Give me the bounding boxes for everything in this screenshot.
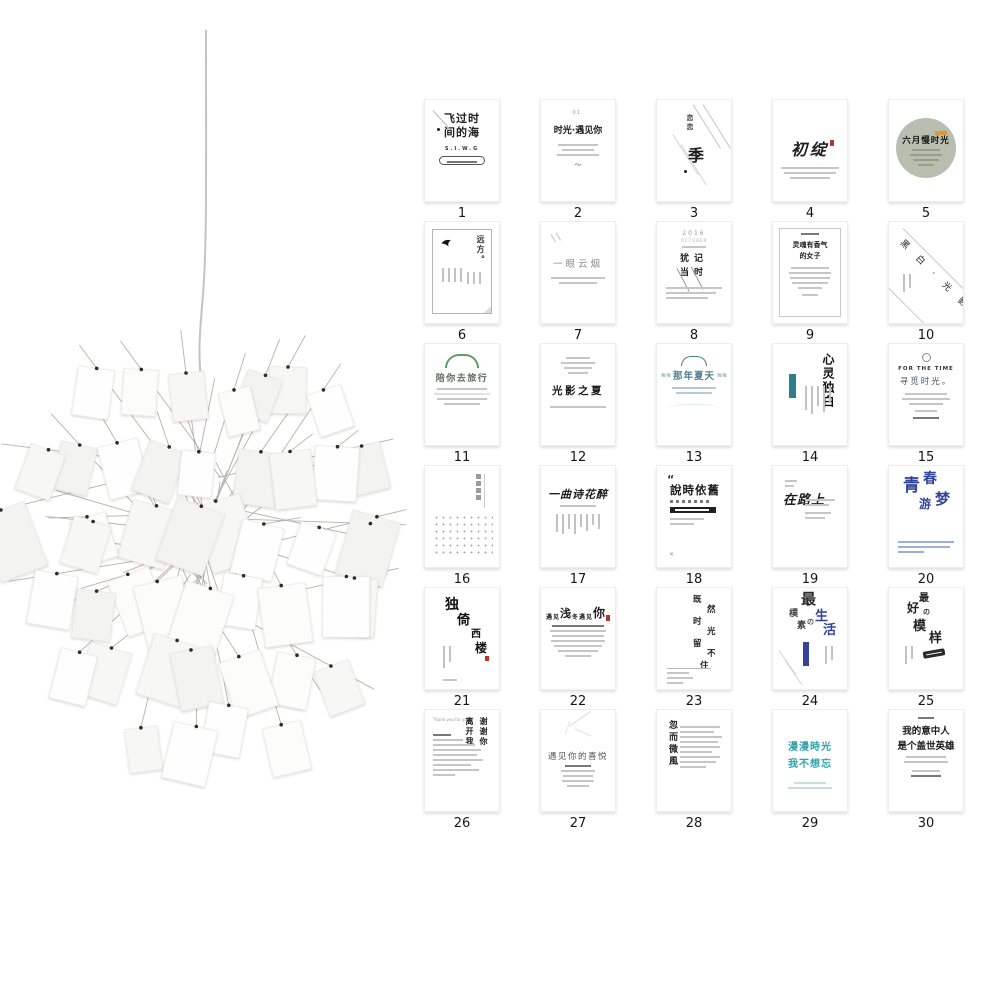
text-lines — [889, 756, 963, 758]
text-lines — [889, 393, 963, 405]
card-design-30: 我的意中人是个盖世英雄 — [888, 709, 964, 812]
card-title-small: 恋恋 — [686, 114, 693, 132]
vertical-text-lines — [541, 514, 615, 534]
text-lines — [889, 717, 963, 719]
text-lines — [785, 480, 847, 487]
wave-watermark — [667, 404, 721, 414]
card-number: 28 — [656, 816, 732, 831]
text-lines — [657, 246, 731, 248]
clip-dot — [195, 725, 199, 729]
clip-dot — [91, 520, 95, 524]
card-cell: 初绽4 — [772, 99, 848, 221]
bar-text-line — [675, 509, 709, 511]
text-line — [552, 625, 604, 627]
card-number: 16 — [424, 572, 500, 587]
title-char: 你 — [593, 604, 605, 621]
vertical-line — [598, 514, 600, 529]
card-design-6: 远方。 — [424, 221, 500, 324]
clip-dot — [200, 504, 204, 508]
card-title: 光影之夏 — [541, 383, 615, 398]
clip-dot — [175, 639, 179, 643]
clip-dot — [288, 450, 292, 454]
clip-dot — [189, 648, 193, 652]
card-title2: 是个盖世英雄 — [889, 738, 963, 752]
title-char: の — [923, 608, 930, 615]
text-lines — [889, 775, 963, 777]
card-number: 24 — [772, 694, 848, 709]
clip-dot — [322, 388, 326, 392]
text-line — [433, 754, 477, 756]
vertical-line — [443, 646, 445, 668]
text-line — [561, 362, 595, 364]
card-title: 漫漫時光 — [773, 738, 847, 753]
vertical-line — [568, 514, 570, 529]
text-line — [565, 765, 591, 767]
clip-dot — [214, 499, 218, 503]
text-line — [667, 682, 683, 684]
card-number: 9 — [772, 328, 848, 343]
ink-dot — [437, 128, 440, 131]
clip-dot — [85, 515, 89, 519]
clip-dot — [259, 450, 263, 454]
card-design-22: 遇见浅冬遇见你 — [540, 587, 616, 690]
title-char: 游 — [919, 498, 931, 510]
text-line — [802, 294, 818, 296]
card-number: 25 — [888, 694, 964, 709]
card-cell: 忽而微風28 — [656, 709, 732, 831]
clip-dot — [317, 526, 321, 530]
card-number: 14 — [772, 450, 848, 465]
card-cell: 独倚西楼21 — [424, 587, 500, 709]
text-line — [801, 233, 819, 235]
card-title: 忽而微風 — [667, 720, 676, 768]
clip-dot — [329, 664, 333, 668]
circle-icon — [922, 353, 931, 362]
card-title: 一曲诗花醉 — [541, 486, 615, 502]
clip-dot — [279, 723, 283, 727]
card-number: 17 — [540, 572, 616, 587]
text-lines — [898, 538, 958, 553]
card-number: 23 — [656, 694, 732, 709]
clip-dot — [242, 574, 246, 578]
design-grid: 飞过时间的海S.I.W.G101.时光·遇见你～2恋恋季3初绽4六月慢时光5远方… — [424, 99, 964, 831]
title-char: 住 — [700, 662, 709, 671]
card-title2: 我不想忘 — [773, 755, 847, 770]
vertical-line — [903, 274, 905, 292]
paper-sheet — [177, 450, 215, 498]
card-number: 15 — [888, 450, 964, 465]
title-char: 既 — [693, 596, 702, 605]
vertical-line — [805, 386, 807, 410]
text-line — [672, 387, 716, 389]
card-number: 20 — [888, 572, 964, 587]
card-design-2: 01.时光·遇见你～ — [540, 99, 616, 202]
clip-dot — [55, 572, 59, 576]
text-line — [680, 746, 720, 748]
text-line — [433, 764, 471, 766]
clip-dot — [78, 650, 82, 654]
text-lines — [541, 357, 615, 374]
card-number: 26 — [424, 816, 500, 831]
card-design-25: 最好の模样 — [888, 587, 964, 690]
paper-sheet — [161, 721, 217, 787]
paragraph — [680, 723, 724, 768]
card-pretitle: 01. — [541, 110, 615, 116]
card-title: 說時依舊 — [670, 482, 731, 498]
card-cell: 遇见你的喜悦27 — [540, 709, 616, 831]
clip-dot — [126, 573, 130, 577]
card-cell: 2016OCTOBER犹记当时8 — [656, 221, 732, 343]
teal-tag — [789, 374, 796, 398]
paper-sheet — [314, 660, 365, 717]
diagonal-line — [569, 711, 591, 727]
vertical-line — [479, 272, 481, 284]
title-char: 见 — [553, 612, 559, 621]
text-lines — [425, 388, 499, 390]
card-design-19: 在路上 — [772, 465, 848, 568]
clip-dot — [95, 367, 99, 371]
diagonal-line — [785, 660, 803, 685]
card-design-1: 飞过时间的海S.I.W.G — [424, 99, 500, 202]
vertical-line — [448, 268, 450, 282]
title-char: 楼 — [475, 642, 487, 654]
card-cell: 漫漫時光我不想忘29 — [772, 709, 848, 831]
text-line — [562, 780, 594, 782]
card-cell: FOR THE TIME寻觅时光。15 — [888, 343, 964, 465]
side-note — [805, 496, 839, 519]
card-cell: 最樸素の生活24 — [772, 587, 848, 709]
card-number: 27 — [540, 816, 616, 831]
card-cell: 一曲诗花醉17 — [540, 465, 616, 587]
folded-corner — [484, 306, 491, 313]
text-line — [557, 154, 599, 156]
product-image: 飞过时间的海S.I.W.G101.时光·遇见你～2恋恋季3初绽4六月慢时光5远方… — [0, 0, 990, 990]
title-char: 然 — [707, 606, 716, 615]
text-line — [433, 759, 483, 761]
character-grid — [433, 514, 493, 558]
paper-sheet — [72, 366, 115, 420]
card-cell: 在路上19 — [772, 465, 848, 587]
text-lines — [773, 167, 847, 179]
card-design-13: ≋≋那年夏天≋≋ — [656, 343, 732, 446]
ink-dot — [684, 170, 687, 173]
clip-dot — [279, 584, 283, 588]
title-char: 遇 — [579, 612, 585, 621]
text-line — [433, 734, 451, 736]
text-lines — [889, 410, 963, 412]
text-line — [680, 756, 720, 758]
text-line — [564, 367, 592, 369]
card-number: 7 — [540, 328, 616, 343]
text-line — [789, 272, 831, 274]
card-title: 远方。 — [476, 235, 484, 265]
title-char: 样 — [929, 632, 942, 645]
card-number: 22 — [540, 694, 616, 709]
text-line — [565, 655, 591, 657]
clip-dot — [139, 726, 143, 730]
clip-dot — [232, 388, 236, 392]
vertical-line — [905, 646, 907, 664]
card-number: 10 — [888, 328, 964, 343]
card-design-7: 一眼云烟 — [540, 221, 616, 324]
text-lines — [666, 287, 731, 299]
clip-dot — [197, 450, 201, 454]
clip-dot — [375, 515, 379, 519]
vertical-text-lines — [823, 646, 835, 664]
text-line — [680, 761, 716, 763]
text-line — [902, 398, 950, 400]
text-line — [666, 287, 722, 289]
vertical-text-lines — [901, 274, 913, 292]
title-char: 遇 — [546, 612, 552, 621]
card-cell: 心灵独白14 — [772, 343, 848, 465]
card-design-18: “說時依舊✕ — [656, 465, 732, 568]
paper-sheet — [258, 582, 313, 647]
text-line — [666, 292, 716, 294]
paper-sheet — [125, 726, 163, 774]
lamp-cord — [199, 30, 206, 392]
text-line — [558, 144, 598, 146]
card-pretitle: 2016 — [657, 230, 731, 237]
text-line — [560, 505, 596, 507]
text-line — [784, 172, 836, 174]
text-line — [791, 267, 829, 269]
title-char: 倚 — [457, 614, 470, 627]
clip-dot — [286, 365, 290, 369]
card-title: 我的意中人 — [889, 723, 963, 737]
vertical-line — [829, 386, 831, 402]
card-design-3: 恋恋季 — [656, 99, 732, 202]
card-number: 12 — [540, 450, 616, 465]
vertical-line — [460, 268, 462, 282]
card-design-12: 光影之夏 — [540, 343, 616, 446]
card-design-10: 黑 白 · 光 影 — [888, 221, 964, 324]
wave-glyph: ≋≋ — [717, 372, 727, 379]
vertical-line — [825, 646, 827, 664]
vertical-line — [562, 514, 564, 534]
text-lines — [541, 144, 615, 156]
vertical-line — [911, 646, 913, 659]
vertical-line — [811, 386, 813, 414]
title-char: 好 — [907, 602, 919, 614]
wave-mark: ～ — [541, 160, 615, 170]
text-line — [680, 766, 706, 768]
text-line — [670, 523, 694, 525]
paper-sheet — [26, 570, 78, 630]
text-line — [785, 485, 794, 487]
text-lines — [773, 233, 847, 235]
title-char: “ — [667, 474, 674, 485]
title-char: 见 — [586, 612, 592, 621]
text-line — [447, 161, 477, 163]
card-design-27: 遇见你的喜悦 — [540, 709, 616, 812]
text-lines — [805, 512, 839, 519]
card-design-16 — [424, 465, 500, 568]
text-line — [437, 388, 487, 390]
text-line — [443, 679, 457, 681]
card-cell: Thank you for your love离开我谢谢你26 — [424, 709, 500, 831]
title-char: 独 — [445, 598, 459, 612]
card-title: 陪你去旅行 — [425, 371, 499, 384]
text-lines — [805, 499, 839, 506]
text-line — [554, 645, 602, 647]
glyph-block — [476, 495, 481, 500]
green-arc — [445, 354, 479, 368]
text-line — [434, 393, 490, 395]
red-seal — [606, 615, 610, 621]
card-cell: “說時依舊✕18 — [656, 465, 732, 587]
card-number: 18 — [656, 572, 732, 587]
glyph-block — [476, 488, 481, 493]
title-char: 浅 — [560, 605, 571, 621]
card-number: 8 — [656, 328, 732, 343]
card-design-26: Thank you for your love离开我谢谢你 — [424, 709, 500, 812]
text-line — [670, 518, 704, 520]
orange-tag — [935, 131, 947, 135]
text-line — [568, 372, 588, 374]
x-mark: ✕ — [669, 552, 674, 558]
clip-dot — [209, 587, 213, 591]
text-lines — [889, 761, 963, 763]
card-number: 29 — [772, 816, 848, 831]
oval-tag — [439, 156, 485, 165]
vertical-text-lines — [465, 272, 483, 284]
text-lines — [425, 398, 499, 405]
card-cell: 灵魂有香气的女子9 — [772, 221, 848, 343]
text-line — [563, 775, 593, 777]
vertical-line — [442, 268, 444, 282]
vertical-text-lines — [440, 268, 464, 282]
text-line — [898, 541, 954, 543]
text-line — [561, 770, 595, 772]
text-line — [911, 775, 941, 777]
clip-dot — [155, 504, 159, 508]
text-line — [566, 357, 590, 359]
card-number: 1 — [424, 206, 500, 221]
card-cell: 01.时光·遇见你～2 — [540, 99, 616, 221]
text-lines — [670, 518, 731, 525]
card-number: 21 — [424, 694, 500, 709]
card-title: 遇见浅冬遇见你 — [541, 604, 615, 621]
title-char: 模 — [913, 620, 926, 633]
vertical-title — [476, 474, 481, 502]
title-char: 冬 — [572, 612, 578, 621]
card-cell: 16 — [424, 465, 500, 587]
text-line — [551, 277, 605, 279]
clip-dot — [155, 580, 159, 584]
diagonal-line — [551, 234, 556, 242]
text-line — [790, 177, 830, 179]
text-lines — [657, 387, 731, 394]
text-line — [781, 167, 839, 169]
paper-sheet — [269, 449, 317, 510]
title-char: 春 — [923, 472, 937, 486]
title-char: 梦 — [935, 492, 950, 507]
paper-sheet — [15, 443, 65, 500]
text-line — [805, 517, 825, 519]
card-cell: 青春游梦20 — [888, 465, 964, 587]
paper-sheet — [49, 648, 97, 707]
card-cell: 遇见浅冬遇见你22 — [540, 587, 616, 709]
card-cell: 既然时光留不住23 — [656, 587, 732, 709]
text-line — [910, 154, 942, 156]
vertical-text-lines — [903, 646, 915, 664]
text-lines — [773, 782, 847, 789]
bird-icon — [441, 238, 452, 247]
card-design-14: 心灵独白 — [772, 343, 848, 446]
diagonal-line — [556, 232, 561, 240]
text-line — [680, 736, 722, 738]
paper-chandelier-image — [0, 0, 420, 990]
text-line — [680, 741, 718, 743]
text-line — [567, 785, 589, 787]
card-design-15: FOR THE TIME寻觅时光。 — [888, 343, 964, 446]
vertical-line — [817, 386, 819, 406]
card-design-29: 漫漫時光我不想忘 — [772, 709, 848, 812]
glyph-block — [476, 474, 481, 479]
text-line — [437, 398, 487, 400]
vertical-line — [592, 514, 594, 525]
text-lines — [425, 393, 499, 395]
clip-dot — [95, 589, 99, 593]
card-design-17: 一曲诗花醉 — [540, 465, 616, 568]
text-line — [904, 761, 948, 763]
text-lines — [541, 765, 615, 767]
text-line — [798, 287, 822, 289]
title-char: 活 — [823, 624, 836, 637]
clip-dot — [262, 522, 266, 526]
text-line — [913, 417, 939, 419]
text-line — [906, 756, 946, 758]
text-lines — [541, 406, 615, 408]
card-design-5: 六月慢时光 — [888, 99, 964, 202]
card-title: 初绽 — [773, 136, 847, 160]
card-title: 遇见你的喜悦 — [541, 750, 615, 762]
card-number: 30 — [888, 816, 964, 831]
vertical-line — [556, 514, 558, 532]
text-line — [444, 403, 480, 405]
text-line — [433, 769, 479, 771]
text-line — [898, 546, 950, 548]
card-cell: 六月慢时光5 — [888, 99, 964, 221]
text-lines — [433, 739, 499, 776]
text-line — [805, 512, 831, 514]
vertical-line — [580, 514, 582, 527]
card-number: 19 — [772, 572, 848, 587]
card-design-20: 青春游梦 — [888, 465, 964, 568]
paper-sheet — [307, 384, 355, 437]
clip-dot — [360, 444, 364, 448]
clip-dot — [78, 443, 82, 447]
clip-dot — [227, 704, 231, 708]
text-line — [905, 393, 947, 395]
text-line — [898, 551, 924, 553]
title-char: 西 — [471, 630, 481, 640]
card-design-24: 最樸素の生活 — [772, 587, 848, 690]
text-line — [680, 731, 714, 733]
card-number: 5 — [888, 206, 964, 221]
vertical-line — [454, 268, 456, 282]
dark-tag — [923, 648, 946, 659]
text-lines — [773, 267, 847, 289]
clip-dot — [336, 445, 340, 449]
text-line — [794, 782, 826, 784]
vertical-line — [909, 274, 911, 288]
clip-dot — [47, 448, 51, 452]
clip-dot — [295, 653, 299, 657]
text-line — [915, 410, 937, 412]
clip-dot — [140, 368, 144, 372]
